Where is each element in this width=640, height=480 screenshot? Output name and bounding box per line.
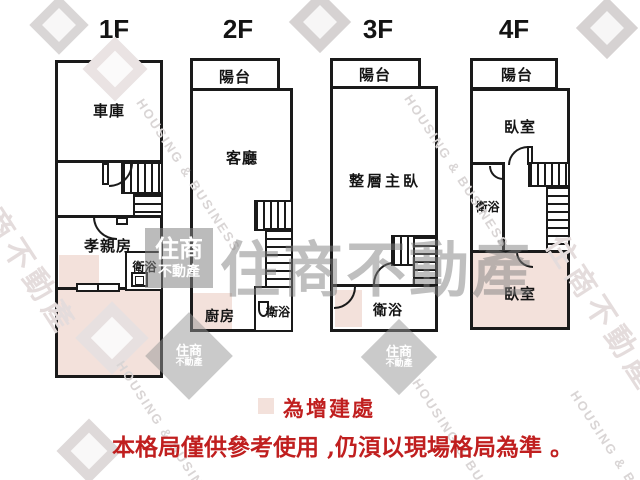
room-label-3f-balcony: 陽台 <box>350 64 400 85</box>
brand-diamond-icon <box>29 0 88 55</box>
room-label-1f-bathroom: 衛浴 <box>128 258 161 275</box>
window-1f <box>76 283 120 292</box>
brand-diamond-icon <box>289 0 351 53</box>
door-leaf-1f-parents <box>116 217 128 225</box>
disclaimer-text: 本格局僅供參考使用 ,仍湏以現場格局為準 。 <box>112 428 573 462</box>
stairs-2f-lower <box>265 228 293 288</box>
stairs-1f-lower <box>133 193 163 217</box>
room-label-kitchen: 廚房 <box>197 306 243 326</box>
room-label-living-room: 客廳 <box>212 147 272 168</box>
room-label-2f-bathroom: 衛浴 <box>264 303 292 320</box>
room-label-terrace: 露臺 <box>65 325 153 350</box>
brand-logo-text: 不動產 <box>385 359 412 368</box>
stairs-4f-upper <box>528 162 570 187</box>
legend-addition-swatch <box>258 398 274 414</box>
room-label-4f-bathroom: 衛浴 <box>471 198 504 215</box>
floor-label-3f: 3F <box>356 14 400 45</box>
legend-addition-label: 為增建處 <box>283 393 375 423</box>
floor-label-1f: 1F <box>92 14 136 45</box>
door-leaf-1f-hall <box>102 163 109 185</box>
floor-label-2f: 2F <box>216 14 260 45</box>
room-label-master-suite: 整層主臥 <box>344 170 426 191</box>
room-label-4f-balcony: 陽台 <box>492 64 542 85</box>
room-label-4f-bedroom-lower: 臥室 <box>495 283 545 304</box>
stairs-2f-upper <box>254 200 293 231</box>
floor-label-4f: 4F <box>492 14 536 45</box>
room-label-4f-bedroom-upper: 臥室 <box>495 116 545 137</box>
brand-logo-text: 住商 <box>176 344 202 358</box>
brand-en-watermark: HOUSING & BUSINESS <box>567 388 640 480</box>
brand-logo-text: 住商 <box>386 345 412 359</box>
brand-logo-text: 不動產 <box>175 358 202 367</box>
room-label-3f-bathroom: 衛浴 <box>366 300 410 320</box>
stairs-4f-lower <box>546 185 570 254</box>
floorplan-image: 1F 2F 3F 4F 車庫 孝親房 衛浴 露臺 陽台 客廳 廚房 衛浴 陽台 … <box>0 0 640 480</box>
room-label-parents-room: 孝親房 <box>60 235 156 256</box>
stairs-3f-lower <box>413 235 437 287</box>
brand-diamond-icon <box>576 0 638 59</box>
room-label-garage: 車庫 <box>65 100 153 121</box>
room-label-2f-balcony: 陽台 <box>210 66 260 87</box>
